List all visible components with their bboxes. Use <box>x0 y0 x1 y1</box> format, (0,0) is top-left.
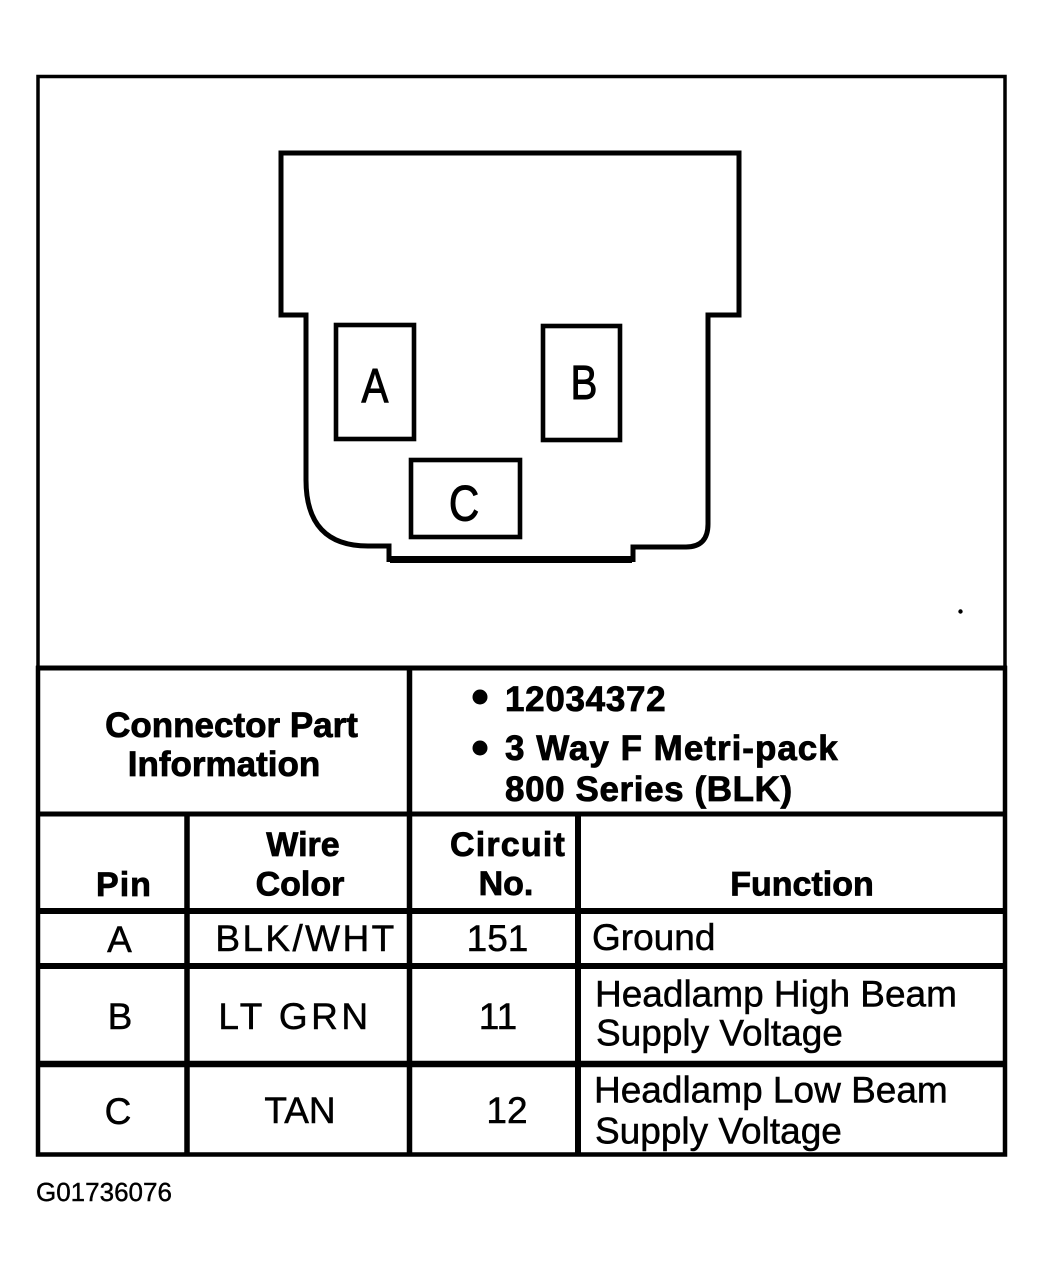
svg-text:LT GRN: LT GRN <box>218 996 371 1037</box>
svg-text:B: B <box>108 996 133 1037</box>
svg-text:C: C <box>449 475 479 531</box>
svg-text:A: A <box>107 919 132 960</box>
svg-text:3 Way F Metri-pack: 3 Way F Metri-pack <box>505 729 839 768</box>
svg-text:11: 11 <box>479 996 517 1037</box>
svg-text:800 Series (BLK): 800 Series (BLK) <box>505 770 793 809</box>
svg-text:TAN: TAN <box>264 1090 335 1131</box>
svg-text:Wire: Wire <box>266 826 339 864</box>
svg-text:Headlamp High Beam: Headlamp High Beam <box>595 974 957 1015</box>
svg-text:Connector Part: Connector Part <box>105 706 358 745</box>
svg-text:No.: No. <box>479 865 534 903</box>
svg-text:B: B <box>571 357 598 410</box>
svg-text:Color: Color <box>256 866 345 904</box>
svg-text:BLK/WHT: BLK/WHT <box>215 918 396 959</box>
svg-text:Supply Voltage: Supply Voltage <box>595 1110 842 1151</box>
svg-text:G01736076: G01736076 <box>36 1177 172 1207</box>
svg-text:Pin: Pin <box>96 866 152 904</box>
svg-text:Ground: Ground <box>592 917 715 958</box>
svg-text:12034372: 12034372 <box>505 680 666 719</box>
svg-text:Function: Function <box>730 866 874 904</box>
svg-text:C: C <box>105 1091 132 1132</box>
svg-text:151: 151 <box>467 918 529 959</box>
svg-text:Information: Information <box>128 745 320 784</box>
svg-text:Supply Voltage: Supply Voltage <box>596 1012 843 1053</box>
svg-text:Headlamp Low Beam: Headlamp Low Beam <box>594 1070 948 1111</box>
svg-text:A: A <box>362 360 389 413</box>
svg-text:12: 12 <box>486 1090 527 1131</box>
svg-text:Circuit: Circuit <box>450 826 566 864</box>
